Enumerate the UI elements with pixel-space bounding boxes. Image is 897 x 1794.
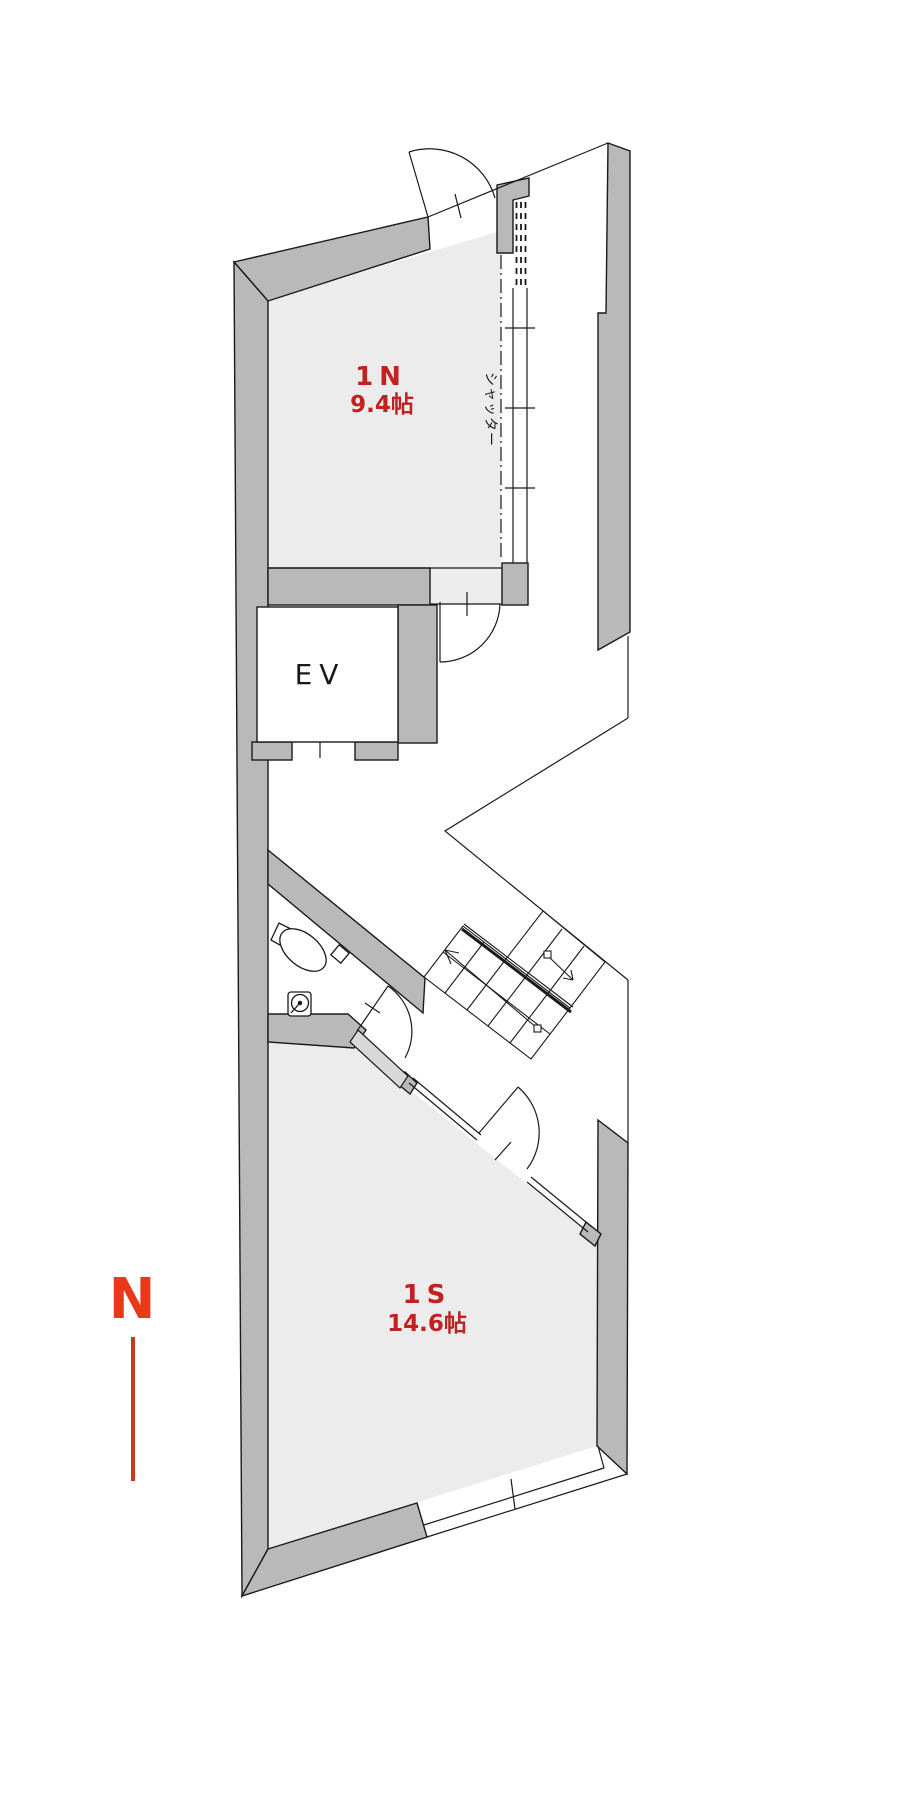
floor-plan-page: EV: [0, 0, 897, 1794]
wall-ev-pillar: [398, 605, 437, 743]
wall-right-1s: [597, 1120, 628, 1474]
floor-plan-drawing: EV: [0, 0, 897, 1794]
wall-block-right-of-door: [502, 563, 528, 605]
staircase: [424, 911, 605, 1059]
wall-1n-bottom: [268, 568, 430, 605]
wall-under-ev-right: [355, 742, 398, 760]
north-compass: N: [109, 1267, 156, 1481]
room-1n-label: 1N: [355, 362, 407, 392]
elevator-label: EV: [295, 658, 346, 691]
elevator: EV: [257, 607, 398, 742]
shutter-label: シャッター: [482, 372, 498, 447]
wall-right-top: [598, 143, 630, 650]
wall-shutter-pillar: [497, 178, 529, 253]
room-1s-label: 1S: [403, 1280, 452, 1310]
wall-under-ev-left: [252, 742, 292, 760]
wall-left: [234, 262, 268, 1596]
sink-icon: [288, 992, 311, 1016]
bottom-window-tick: [511, 1479, 515, 1509]
room-1n-area-label: 9.4帖: [350, 392, 414, 418]
entry-vestibule-floor: [430, 568, 502, 605]
north-label: N: [109, 1267, 156, 1332]
room-1s-area-label: 14.6帖: [387, 1311, 467, 1337]
